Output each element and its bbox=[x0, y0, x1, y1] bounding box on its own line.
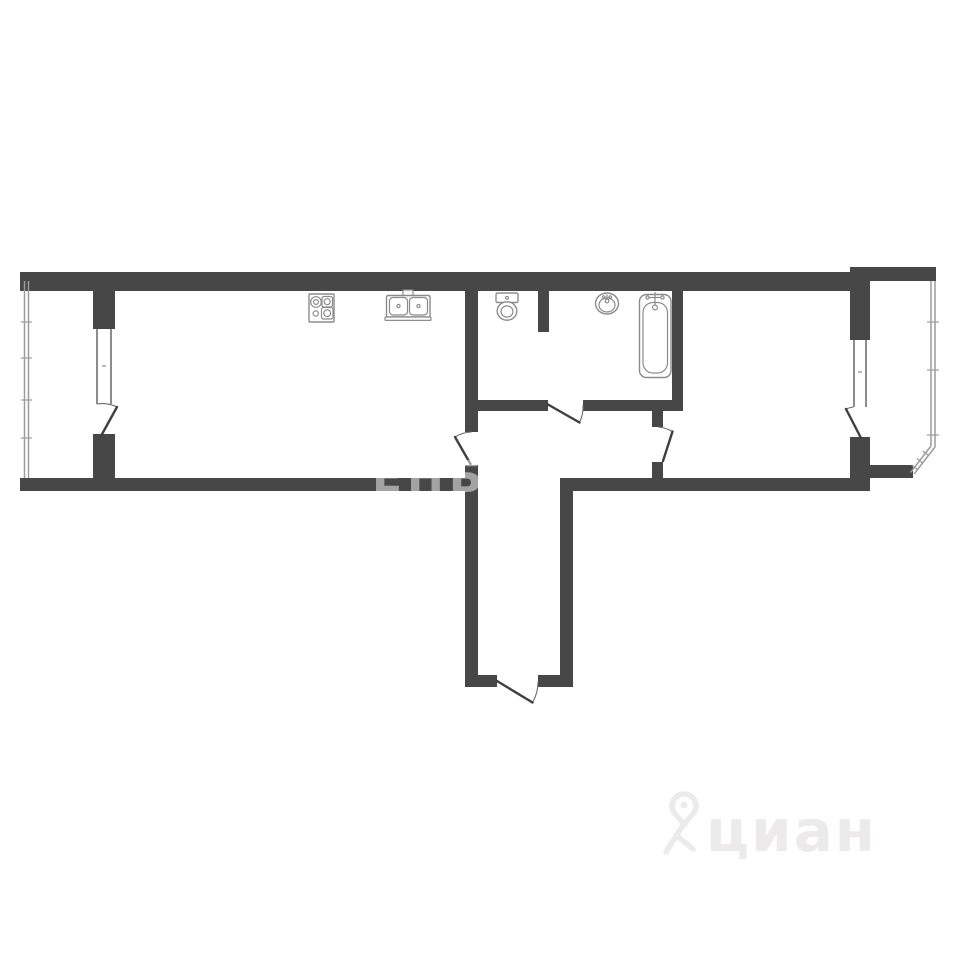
watermark-brand-text: циан bbox=[706, 797, 877, 865]
hallway-east-stub-top bbox=[652, 411, 663, 427]
entrance-stub-left bbox=[465, 675, 497, 687]
left-balcony-door bbox=[97, 404, 117, 436]
entrance-door bbox=[497, 681, 538, 703]
right-loggia-corner-glazing bbox=[911, 446, 936, 474]
right-loggia-top-wall bbox=[850, 267, 936, 281]
corridor-right-wall bbox=[560, 478, 573, 687]
hallway-east-stub-bottom bbox=[652, 462, 663, 478]
bathroom-door bbox=[548, 405, 583, 423]
left-partition-upper-block bbox=[93, 291, 115, 329]
right-loggia-bottom-wall bbox=[870, 465, 913, 478]
right-partition-lower-block bbox=[850, 437, 870, 491]
bathroom-east-wall bbox=[672, 291, 683, 411]
right-balcony-window bbox=[854, 340, 866, 407]
floor-plan-canvas: ЕНБ циан bbox=[0, 0, 960, 960]
bedroom-door bbox=[658, 427, 673, 461]
kitchen-bathroom-divider-wall bbox=[465, 291, 478, 432]
cian-logo-icon bbox=[666, 794, 696, 852]
bathtub-icon bbox=[640, 292, 672, 378]
bottom-wall-right bbox=[560, 478, 870, 491]
wc-partition-stub bbox=[538, 291, 549, 332]
washbasin-icon bbox=[596, 293, 619, 314]
sink-icon bbox=[385, 290, 431, 320]
top-wall bbox=[20, 272, 857, 291]
watermark-center-text: ЕНБ bbox=[372, 452, 487, 503]
toilet-icon bbox=[496, 293, 518, 320]
left-loggia-glazing bbox=[21, 281, 32, 478]
entrance-stub-right bbox=[538, 675, 573, 687]
bathroom-south-wall-right bbox=[583, 400, 683, 411]
floor-plan-image: ЕНБ циан bbox=[0, 0, 960, 960]
left-balcony-window bbox=[97, 329, 111, 404]
bathroom-south-wall-left bbox=[478, 400, 548, 411]
stove-icon bbox=[309, 294, 334, 322]
right-partition-upper-block bbox=[850, 281, 870, 340]
right-balcony-door bbox=[846, 407, 861, 438]
right-loggia-glazing bbox=[927, 281, 939, 447]
